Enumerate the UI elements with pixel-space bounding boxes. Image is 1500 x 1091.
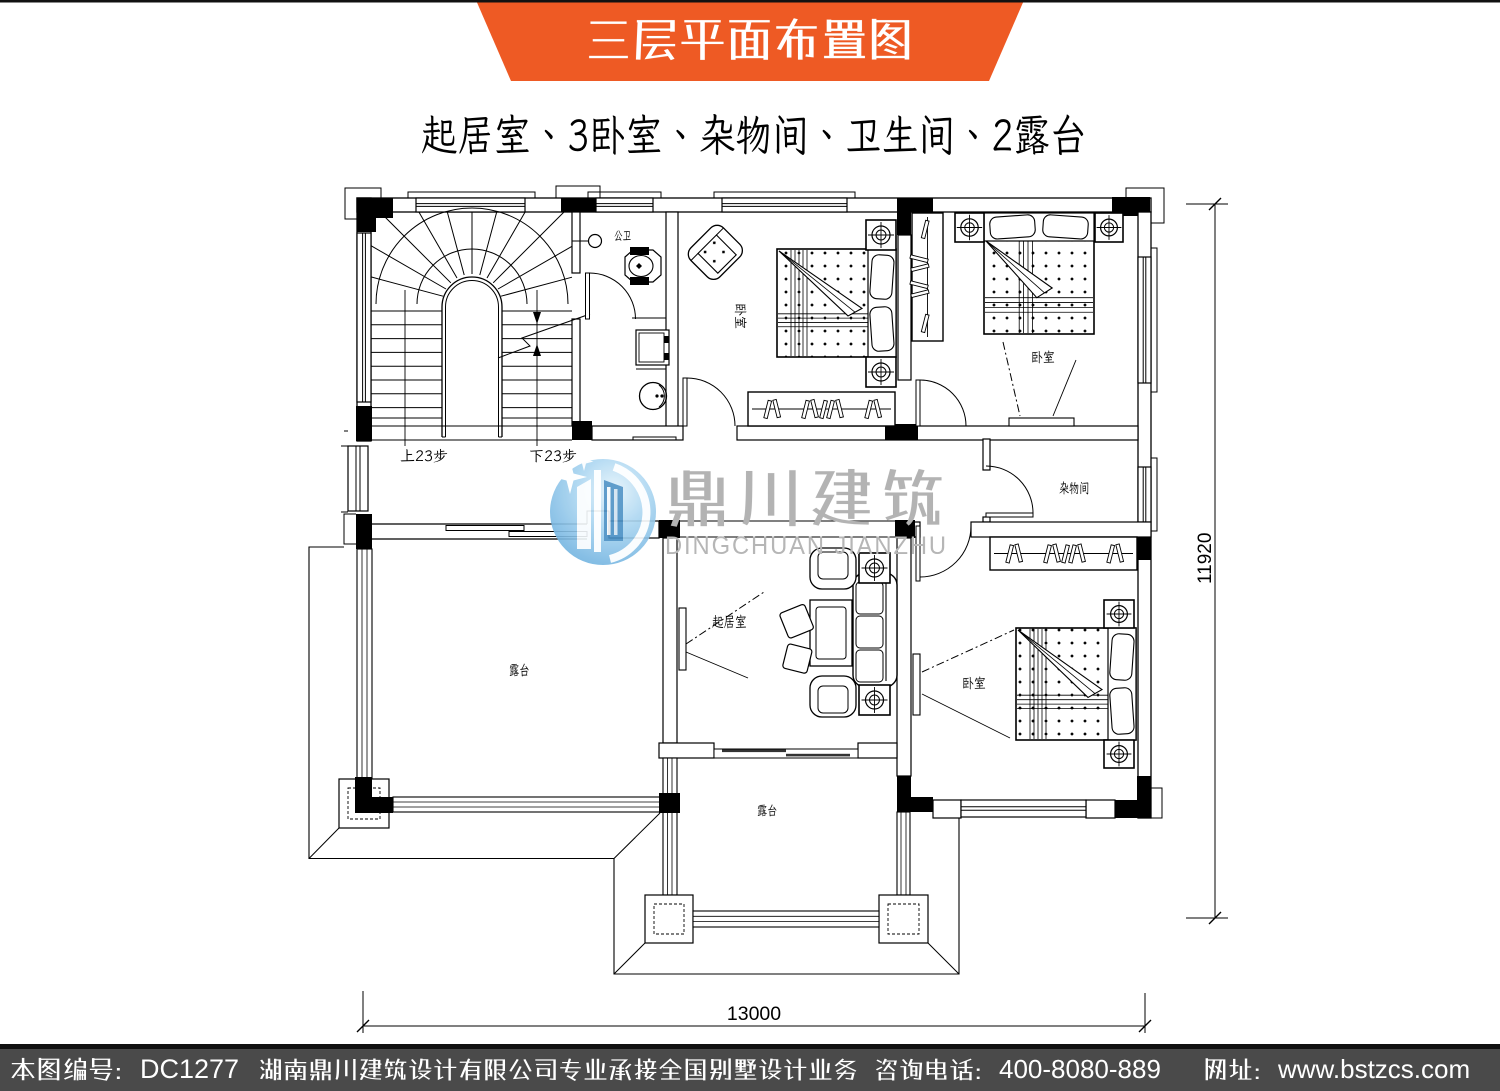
svg-text:DINGCHUAN JIANZHU: DINGCHUAN JIANZHU (665, 532, 948, 560)
svg-text:11920: 11920 (1195, 533, 1216, 584)
svg-text:400-8080-889: 400-8080-889 (999, 1054, 1161, 1084)
svg-text:13000: 13000 (727, 1003, 781, 1025)
svg-text:DC1277: DC1277 (140, 1054, 239, 1084)
svg-text:www.bstzcs.com: www.bstzcs.com (1277, 1054, 1470, 1084)
